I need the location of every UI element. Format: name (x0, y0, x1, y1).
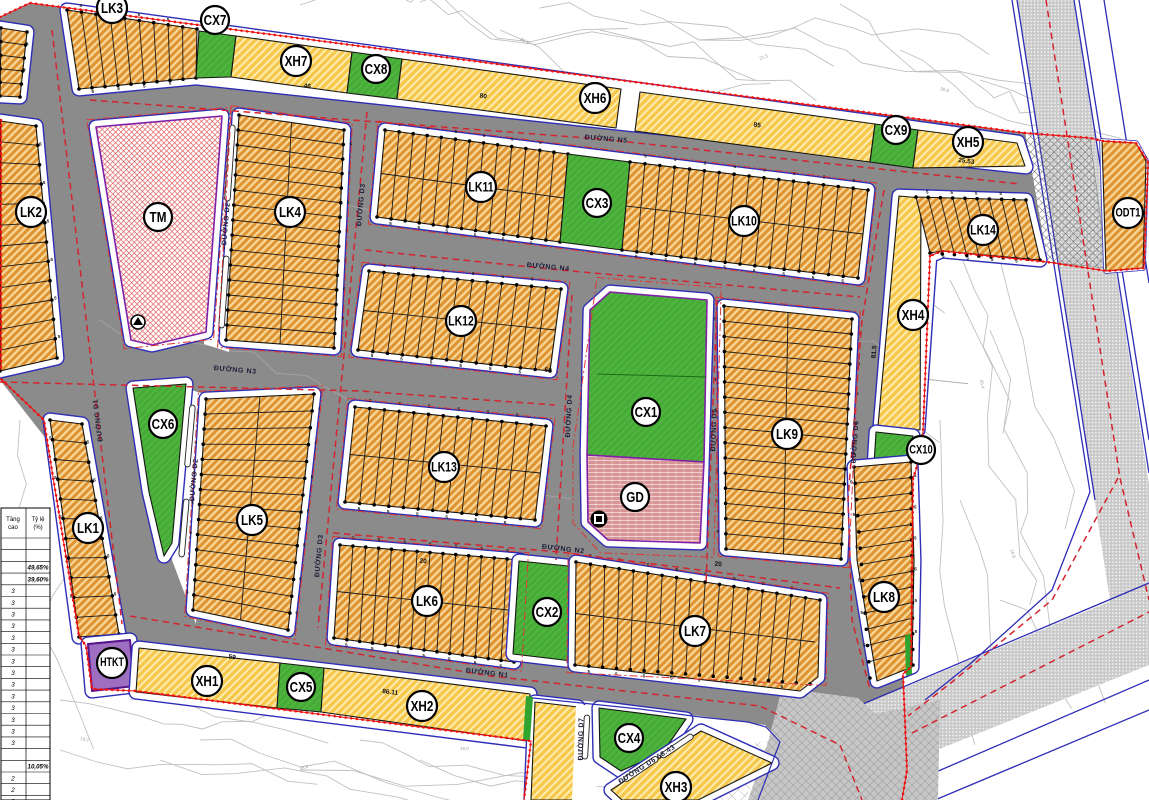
svg-text:(%): (%) (33, 525, 42, 531)
svg-text:LK13: LK13 (431, 459, 457, 475)
svg-text:CX3: CX3 (586, 195, 609, 212)
svg-text:81.5: 81.5 (871, 345, 879, 358)
svg-text:46: 46 (303, 83, 312, 91)
svg-text:3: 3 (11, 693, 15, 700)
svg-text:LK10: LK10 (731, 213, 757, 229)
svg-text:85: 85 (753, 122, 762, 130)
svg-text:2: 2 (10, 775, 15, 782)
svg-text:39,60%: 39,60% (28, 576, 49, 583)
svg-text:LK14: LK14 (970, 222, 996, 238)
svg-text:TM: TM (150, 209, 167, 226)
svg-text:XH2: XH2 (411, 698, 434, 715)
svg-text:CX8: CX8 (365, 61, 388, 78)
svg-text:3: 3 (11, 600, 15, 607)
svg-text:CX7: CX7 (204, 12, 227, 29)
svg-text:LK6: LK6 (416, 593, 438, 610)
svg-text:cao: cao (8, 525, 18, 531)
svg-text:3: 3 (11, 670, 15, 677)
svg-text:LK1: LK1 (77, 520, 100, 537)
svg-text:LK3: LK3 (101, 0, 123, 16)
svg-text:3: 3 (11, 729, 15, 736)
svg-text:3: 3 (11, 612, 15, 619)
svg-text:XH3: XH3 (665, 779, 688, 796)
svg-text:LK8: LK8 (873, 589, 896, 606)
svg-text:LK11: LK11 (468, 179, 493, 195)
svg-text:CX2: CX2 (536, 604, 559, 621)
svg-text:LK2: LK2 (20, 204, 42, 221)
svg-text:20: 20 (714, 561, 722, 569)
svg-text:CX5: CX5 (290, 679, 313, 696)
svg-text:XH7: XH7 (285, 53, 308, 70)
svg-text:CX9: CX9 (885, 122, 908, 139)
svg-text:3: 3 (11, 623, 15, 630)
svg-text:CX1: CX1 (635, 404, 658, 421)
svg-text:10,05%: 10,05% (28, 764, 49, 771)
svg-text:LK12: LK12 (448, 313, 474, 329)
svg-text:19.0: 19.0 (460, 746, 469, 751)
svg-text:LK7: LK7 (684, 623, 706, 640)
svg-text:XH1: XH1 (196, 673, 219, 690)
svg-text:3: 3 (11, 682, 15, 689)
svg-text:CX6: CX6 (152, 416, 175, 433)
svg-text:3: 3 (11, 740, 15, 747)
svg-text:LK4: LK4 (279, 204, 302, 221)
svg-text:3: 3 (11, 635, 15, 642)
svg-text:49,65%: 49,65% (27, 565, 49, 572)
svg-text:20: 20 (419, 558, 427, 566)
svg-text:GD: GD (626, 489, 644, 506)
svg-text:80: 80 (479, 93, 488, 101)
svg-text:XH6: XH6 (584, 90, 607, 107)
svg-text:HTKT: HTKT (100, 657, 124, 669)
svg-text:3: 3 (11, 658, 15, 665)
svg-text:CX4: CX4 (618, 730, 641, 747)
svg-text:3: 3 (11, 717, 15, 724)
svg-text:Tỷ lệ: Tỷ lệ (31, 516, 45, 523)
svg-text:3: 3 (11, 647, 15, 654)
svg-text:Tầng: Tầng (6, 517, 20, 523)
svg-text:3: 3 (11, 705, 15, 712)
svg-text:2: 2 (10, 787, 15, 794)
svg-text:CX10: CX10 (909, 443, 932, 456)
svg-text:3: 3 (11, 588, 15, 595)
svg-text:59: 59 (228, 654, 236, 662)
svg-text:60: 60 (544, 367, 552, 375)
svg-text:LK5: LK5 (241, 512, 264, 529)
svg-text:LK9: LK9 (776, 426, 798, 443)
svg-text:ODT1: ODT1 (1116, 206, 1141, 219)
svg-text:XH4: XH4 (902, 307, 925, 324)
svg-text:XH5: XH5 (957, 134, 980, 151)
